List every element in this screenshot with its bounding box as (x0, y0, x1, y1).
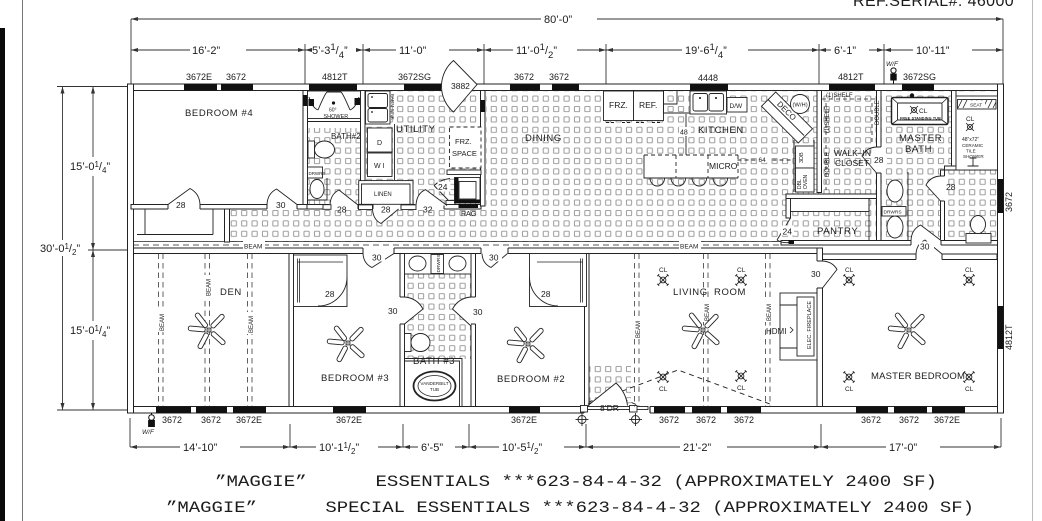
svg-text:CL: CL (737, 267, 746, 274)
svg-text:28: 28 (381, 205, 391, 215)
svg-text:DEN: DEN (220, 287, 242, 298)
svg-text:BEDROOM #4: BEDROOM #4 (185, 108, 253, 119)
svg-text:CL: CL (737, 385, 746, 392)
svg-text:REF.SERIAL#: 46000: REF.SERIAL#: 46000 (853, 0, 1014, 10)
svg-text:MICRO: MICRO (709, 161, 738, 171)
svg-text:3672: 3672 (226, 72, 246, 82)
svg-text:24: 24 (783, 227, 793, 237)
svg-text:3672E: 3672E (336, 415, 362, 425)
svg-text:10’-11”: 10’-11” (916, 45, 950, 57)
svg-text:3672: 3672 (1004, 192, 1014, 212)
svg-text:DINING: DINING (525, 133, 562, 144)
svg-text:DRWRS: DRWRS (309, 171, 326, 176)
svg-text:48: 48 (680, 130, 688, 137)
svg-text:60°: 60° (329, 108, 337, 114)
svg-text:D: D (377, 140, 382, 147)
svg-text:RAG: RAG (461, 211, 476, 218)
svg-text:3672E: 3672E (186, 72, 212, 82)
svg-text:DRWRS: DRWRS (884, 210, 902, 216)
svg-text:HDMI: HDMI (766, 327, 786, 336)
svg-text:FREE STANDING TUB: FREE STANDING TUB (900, 117, 941, 121)
svg-text:28: 28 (176, 200, 186, 210)
svg-text:BEAM: BEAM (636, 321, 642, 338)
svg-text:MASTER: MASTER (899, 133, 942, 144)
svg-text:FRZ.: FRZ. (455, 137, 472, 146)
svg-text:3672: 3672 (162, 415, 182, 425)
svg-text:21’-2”: 21’-2” (683, 442, 711, 454)
svg-text:”MAGGIE” SPECIAL ESSENTIA: ”MAGGIE” SPECIAL ESSENTIALS ***623-84-4-… (166, 499, 974, 517)
svg-text:CL: CL (965, 267, 974, 274)
svg-text:3DB: 3DB (799, 152, 805, 163)
svg-text:BEDROOM #2: BEDROOM #2 (497, 374, 565, 385)
svg-text:3672E: 3672E (236, 415, 262, 425)
svg-text:11’-0”: 11’-0” (399, 45, 427, 57)
svg-text:TILE: TILE (966, 149, 976, 154)
svg-text:3672E: 3672E (511, 415, 537, 425)
svg-text:4812T: 4812T (322, 72, 348, 82)
svg-text:FARM SINK: FARM SINK (389, 94, 395, 121)
svg-text:3672: 3672 (201, 415, 221, 425)
svg-text:REF.: REF. (639, 100, 657, 110)
svg-text:BEAM: BEAM (160, 314, 166, 331)
svg-text:TUB: TUB (430, 387, 439, 392)
svg-text:24: 24 (438, 182, 448, 192)
svg-text:3672: 3672 (549, 72, 569, 82)
svg-text:MASTER BEDROOM: MASTER BEDROOM (871, 371, 965, 382)
svg-text:CL: CL (965, 386, 974, 393)
svg-text:6’-1”: 6’-1” (834, 45, 856, 57)
svg-text:3672SG: 3672SG (903, 72, 936, 82)
svg-text:BEAM: BEAM (244, 244, 262, 251)
svg-text:KITCHEN: KITCHEN (698, 125, 744, 136)
svg-text:DRWRS: DRWRS (436, 254, 442, 272)
svg-text:DOUBLE: DOUBLE (875, 100, 881, 125)
svg-text:BEDROOM #3: BEDROOM #3 (321, 373, 389, 384)
svg-text:64: 64 (759, 157, 767, 164)
svg-text:80’-0”: 80’-0” (544, 14, 572, 26)
svg-text:W/F: W/F (886, 61, 899, 68)
svg-text:BATH #3: BATH #3 (413, 356, 455, 367)
svg-text:3882: 3882 (451, 81, 470, 91)
svg-text:30: 30 (489, 253, 499, 263)
svg-text:(1)SHELF: (1)SHELF (826, 93, 853, 99)
svg-text:30: 30 (372, 253, 382, 263)
svg-text:ROOM: ROOM (714, 287, 746, 298)
svg-text:SHOWER: SHOWER (324, 114, 349, 120)
svg-text:UTILITY: UTILITY (396, 124, 436, 135)
svg-text:30: 30 (811, 269, 821, 279)
svg-text:WALK–IN: WALK–IN (834, 148, 871, 158)
svg-text:OVEN: OVEN (803, 174, 809, 189)
svg-text:”MAGGIE” ESSENTIALS ***62: ”MAGGIE” ESSENTIALS ***623-84-4-32 (APPR… (215, 473, 937, 491)
svg-text:SEAT: SEAT (970, 103, 982, 109)
svg-text:(W/H): (W/H) (793, 103, 808, 109)
svg-text:BEAM: BEAM (680, 244, 698, 251)
svg-text:CERAMIC: CERAMIC (962, 143, 984, 148)
svg-text:17’-0”: 17’-0” (889, 442, 917, 454)
svg-text:CLOSET: CLOSET (835, 158, 869, 168)
svg-text:CL: CL (966, 116, 975, 123)
svg-text:3672: 3672 (659, 415, 679, 425)
svg-text:16’-2”: 16’-2” (192, 45, 220, 57)
svg-text:32: 32 (423, 205, 433, 215)
svg-text:3672: 3672 (861, 415, 881, 425)
svg-text:3672E: 3672E (934, 415, 960, 425)
svg-text:CL: CL (919, 108, 928, 115)
svg-text:BEAM: BEAM (767, 304, 773, 321)
svg-text:4812T: 4812T (1004, 324, 1014, 350)
svg-text:VANDERBILT: VANDERBILT (420, 381, 448, 386)
svg-text:4812T: 4812T (838, 72, 864, 82)
svg-text:8’DR: 8’DR (600, 403, 619, 413)
svg-text:28: 28 (874, 155, 884, 165)
svg-text:BEAM: BEAM (705, 304, 711, 321)
svg-text:28: 28 (337, 205, 347, 215)
svg-text:PANTRY: PANTRY (817, 226, 858, 237)
svg-text:30: 30 (473, 307, 483, 317)
svg-text:SPACE: SPACE (452, 149, 477, 158)
svg-text:CL: CL (845, 386, 854, 393)
svg-text:28: 28 (325, 289, 335, 299)
svg-text:30: 30 (276, 200, 286, 210)
svg-text:30: 30 (920, 242, 930, 252)
svg-text:CL: CL (845, 267, 854, 274)
svg-text:DOUBLE: DOUBLE (825, 152, 831, 177)
svg-text:CL: CL (659, 386, 668, 393)
svg-text:LIVING: LIVING (673, 287, 708, 298)
svg-text:ELEC. FIREPLACE: ELEC. FIREPLACE (807, 301, 813, 349)
svg-text:FRZ.: FRZ. (609, 100, 628, 110)
svg-text:4448: 4448 (698, 73, 718, 83)
svg-text:W/F: W/F (142, 429, 155, 436)
svg-text:LINEN: LINEN (374, 192, 392, 198)
svg-text:3672: 3672 (899, 415, 919, 425)
svg-text:30: 30 (388, 306, 398, 316)
svg-text:W I: W I (374, 163, 385, 170)
svg-text:3672SG: 3672SG (398, 72, 431, 82)
svg-text:3672: 3672 (734, 415, 754, 425)
svg-text:CL: CL (659, 267, 668, 274)
svg-text:(1)SHELF: (1)SHELF (825, 106, 831, 133)
svg-text:BATH: BATH (905, 144, 932, 155)
svg-text:6’-5”: 6’-5” (421, 442, 443, 454)
svg-text:28: 28 (946, 182, 956, 192)
svg-text:BATH#2: BATH#2 (331, 132, 361, 141)
svg-text:3672: 3672 (514, 72, 534, 82)
svg-text:BEAM: BEAM (207, 279, 213, 296)
svg-text:3672: 3672 (696, 415, 716, 425)
svg-text:D/W: D/W (730, 103, 744, 110)
svg-text:BEAM: BEAM (249, 316, 255, 333)
svg-text:14’-10”: 14’-10” (183, 442, 218, 454)
svg-text:28: 28 (541, 289, 551, 299)
